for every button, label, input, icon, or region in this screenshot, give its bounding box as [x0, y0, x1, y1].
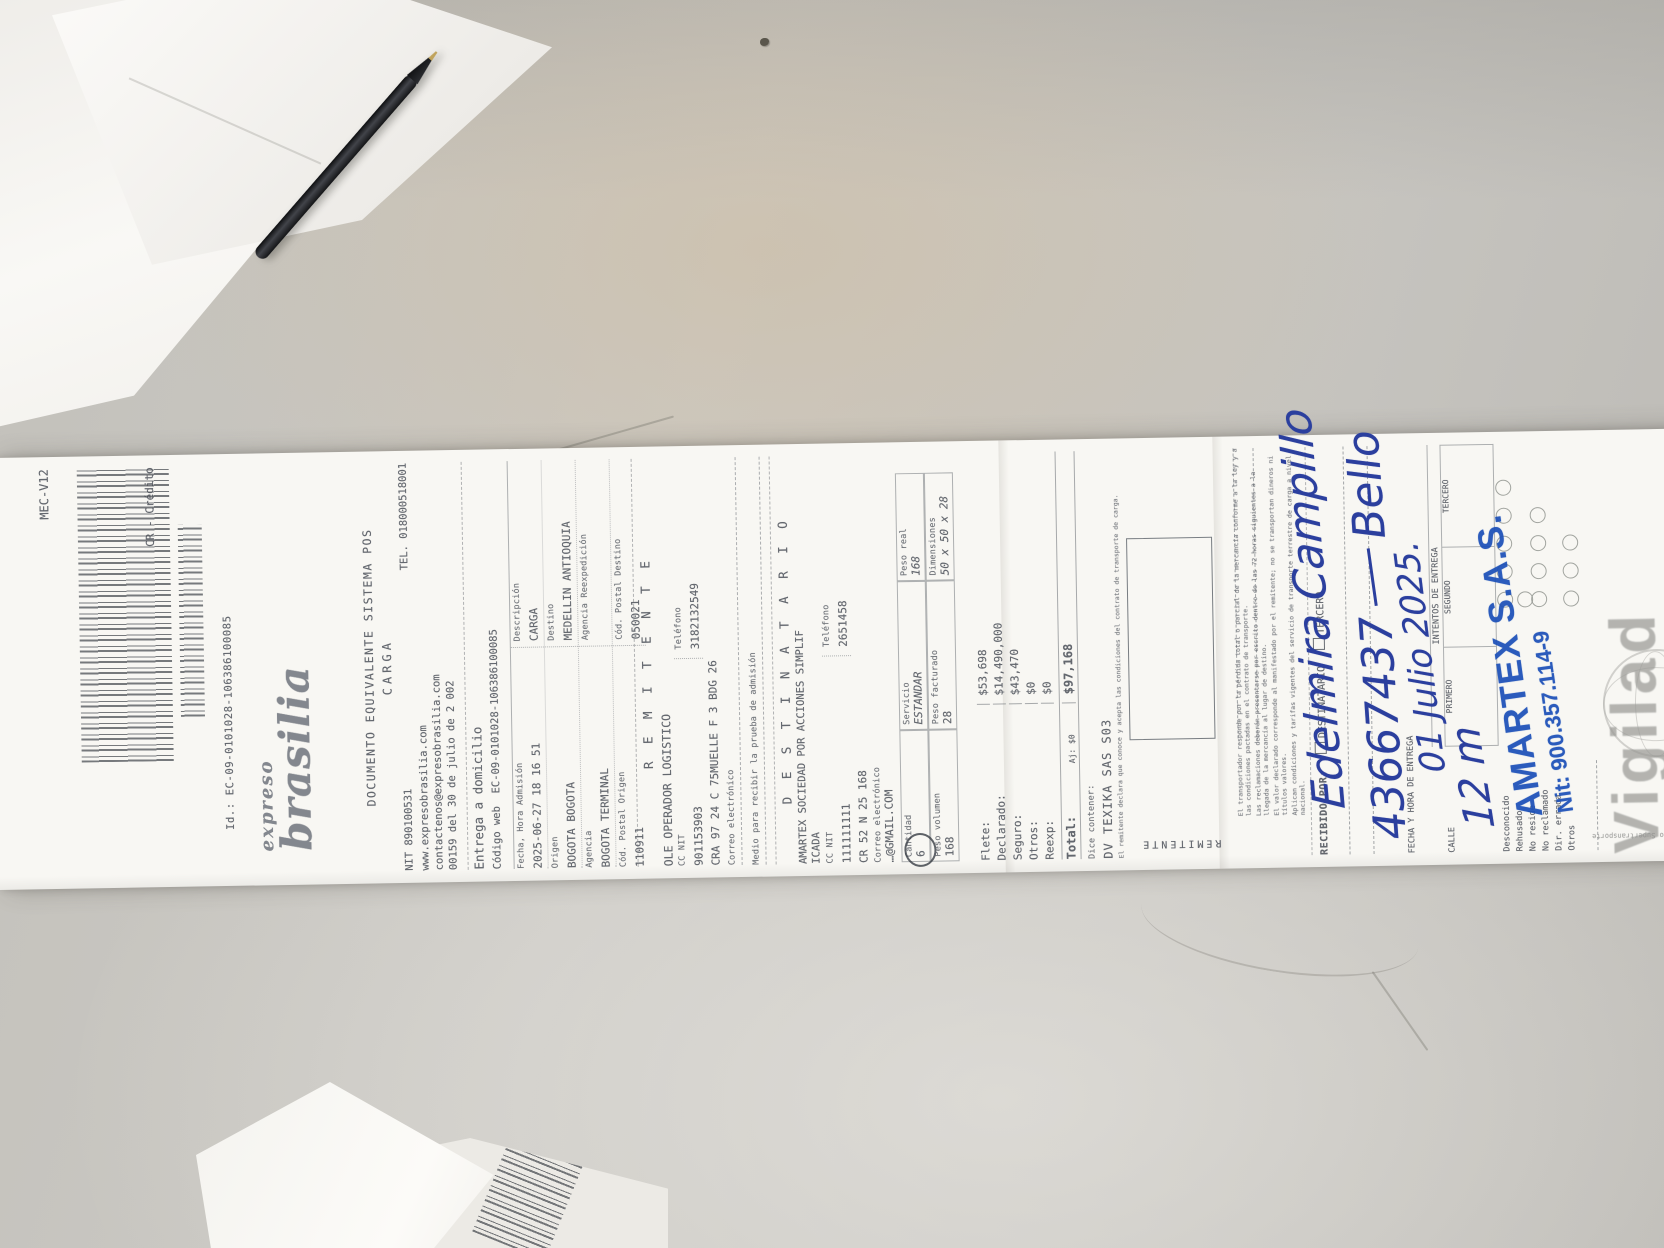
mark-circles-row: [1560, 442, 1583, 606]
amount-value: $14,490,000: [991, 575, 1006, 704]
volumen-cell: Peso volumen168: [928, 729, 959, 862]
handwriting-dash-stroke: [1367, 549, 1378, 607]
mark-circle: [1562, 534, 1578, 550]
contents-label: Dice contener:: [1081, 451, 1098, 859]
field-value: CARGA: [527, 608, 541, 641]
total-label: Total:: [1064, 816, 1079, 860]
doc-title: DOCUMENTO EQUIVALENTE SISTEMA POS: [359, 463, 380, 871]
field-value: 28: [941, 711, 954, 724]
desk-scratch: [1372, 971, 1429, 1051]
remitente-email-label: Correo electrónico: [721, 457, 743, 865]
field-label: Cód. Postal Origen: [615, 647, 629, 868]
corner-barcode: [472, 1129, 586, 1248]
handwriting-city: Bello: [1338, 429, 1396, 541]
field-label: Teléfono: [819, 455, 832, 647]
vigilado-watermark: Vigilad: [1595, 609, 1664, 854]
field-label: Peso volumen: [931, 734, 943, 857]
doc-subtitle: CARGA: [377, 463, 398, 871]
field-label: Peso real: [898, 478, 910, 576]
dimensiones-cell: Dimensiones50 x 50 x 28: [924, 472, 955, 580]
field-value: 3182132549: [688, 583, 702, 649]
field-value: 901153903: [692, 806, 706, 866]
field-label: Dimensiones: [927, 478, 939, 576]
admission-table: Fecha, Hora Admisión2025-06-27 18 16 51 …: [507, 459, 650, 869]
proof-medium-label: Medio para recibir la prueba de admisión: [745, 457, 767, 865]
field-label: Origen: [547, 648, 561, 869]
total-adjustment: Aj: $0: [1067, 734, 1077, 763]
field-value: 168: [909, 556, 922, 576]
amount-label: Flete:: [979, 821, 993, 861]
facturado-cell: Peso facturado28: [926, 580, 958, 729]
field-label: Agencia: [581, 647, 595, 868]
amount-value: $53,698: [975, 576, 990, 705]
field-label: Agencia Reexpedición: [578, 460, 591, 641]
field-value: MEDELLIN ANTIOQUIA: [560, 521, 575, 640]
field-label: Teléfono: [671, 458, 684, 650]
shipment-id: Id.: EC-09-0101028-106386100085: [219, 466, 237, 830]
total-value: $97,168: [1060, 574, 1076, 703]
brand-main: brasilia: [266, 464, 322, 851]
codigo-web-value: EC-09-0101028-106386100085: [488, 629, 503, 794]
form-code: MEC-V12: [37, 469, 58, 877]
mark-circle: [1563, 590, 1579, 606]
total-row: Total: Aj: $0 $97,168: [1055, 451, 1082, 859]
remitente-flipped-label: REMITENTE: [1131, 837, 1231, 850]
shipping-receipt: MEC-V12 CR - Crédito Id.: EC-09-0101028-…: [0, 428, 1664, 890]
company-nit: NIT 890100531: [402, 789, 415, 871]
desk-scratch: [558, 416, 674, 451]
destinatario-id-row: CC NIT111111111 Teléfono2651458: [819, 455, 855, 863]
amount-label: Reexp:: [1043, 820, 1057, 860]
field-value: BOGOTA TERMINAL: [598, 768, 613, 868]
field-value: 168: [943, 836, 956, 856]
servicio-cell: ServicioESTANDAR: [897, 581, 929, 730]
field-value: 2025-06-27 18 16 51: [530, 743, 545, 869]
company-tel: TEL. 018000518001: [397, 463, 411, 571]
mark-circle: [1563, 562, 1579, 578]
codigo-web-row: Código web EC-09-0101028-106386100085: [485, 461, 504, 869]
contents-value: DV TEXIKA SAS S03: [1099, 719, 1115, 859]
field-label: Servicio: [900, 586, 912, 725]
amount-label: Seguro:: [1011, 814, 1025, 861]
brand-logo: expreso brasilia: [251, 464, 322, 851]
amount-value: $0: [1039, 575, 1054, 704]
shipment-grid: Cantidad 6 ServicioESTANDAR Peso real168…: [895, 453, 960, 862]
amount-value: $0: [1023, 575, 1038, 704]
cantidad-cell: Cantidad 6: [899, 729, 930, 862]
field-value: ESTANDAR: [911, 671, 925, 724]
amount-value: $43,470: [1007, 575, 1022, 704]
field-label: Fecha, Hora Admisión: [513, 648, 527, 869]
remitente-id-row: CC NIT901153903 Teléfono3182132549: [671, 458, 707, 866]
field-label: Descripción: [510, 461, 523, 642]
field-label: CC NIT: [674, 659, 688, 867]
desk-speck: [760, 38, 769, 46]
field-label: Peso facturado: [929, 585, 941, 724]
amount-label: Declarado:: [994, 794, 1008, 860]
field-value: 50 x 50 x 28: [937, 496, 951, 576]
amount-label: Otros:: [1027, 820, 1041, 860]
peso-real-cell: Peso real168: [895, 473, 926, 581]
field-label: CC NIT: [822, 656, 836, 864]
codigo-web-label: Código web: [491, 806, 504, 869]
field-value: BOGOTA BOGOTA: [564, 782, 579, 868]
field-value: 111111111: [840, 803, 854, 863]
barcode: [77, 465, 174, 763]
barcode-small: [178, 524, 205, 716]
vigilado-side-text: Vigilado Supertransporte: [1573, 830, 1664, 840]
field-value: 2651458: [836, 600, 850, 647]
field-label: Destino: [544, 460, 557, 641]
desk-scratch-arc: [1135, 859, 1426, 994]
field-label: Cód. Postal Destino: [612, 459, 625, 640]
signature-box: [1126, 537, 1216, 740]
delivery-mode: Entrega a domicilio: [465, 462, 487, 870]
desk-scene: MEC-V12 CR - Crédito Id.: EC-09-0101028-…: [0, 0, 1664, 1248]
